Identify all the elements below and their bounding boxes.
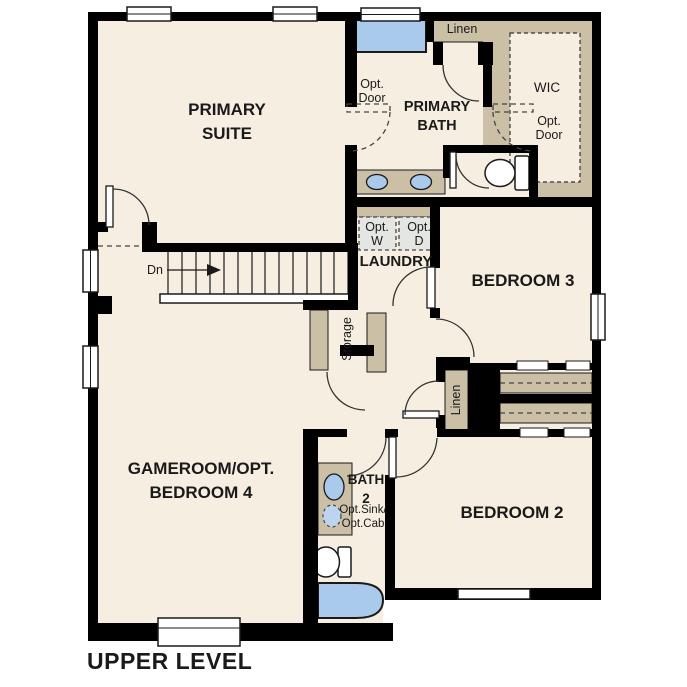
optional-washer-box xyxy=(359,217,396,250)
optional-dryer-box xyxy=(399,217,433,250)
storage-shelf-right xyxy=(367,313,386,372)
primary-suite-door-leaf xyxy=(106,186,113,227)
storage-shelf-left xyxy=(310,310,328,370)
laundry-door-leaf xyxy=(427,267,435,308)
wc-door-leaf xyxy=(450,152,456,188)
vanity-sink-left xyxy=(367,175,388,190)
toilet-bath2 xyxy=(313,547,352,577)
shower xyxy=(356,18,426,52)
floor-plan-drawing xyxy=(0,0,687,687)
bedroom2-door-opening xyxy=(398,428,437,438)
toilet-primary xyxy=(485,156,529,190)
bath2-optional-sink xyxy=(323,505,341,527)
bath2-door-opening xyxy=(347,428,385,438)
plan-title: UPPER LEVEL xyxy=(87,648,252,675)
bath2-sink xyxy=(324,474,344,500)
vanity-sink-right xyxy=(411,175,432,190)
bathtub xyxy=(318,583,383,618)
linen-cabinet-hall xyxy=(445,370,468,432)
linen-hall-door-leaf xyxy=(403,411,439,418)
floor-plan: PRIMARY SUITE PRIMARY BATH Opt. Door Lin… xyxy=(0,0,687,687)
exterior-cutout xyxy=(383,600,601,645)
bedroom2-door-leaf xyxy=(389,437,396,478)
